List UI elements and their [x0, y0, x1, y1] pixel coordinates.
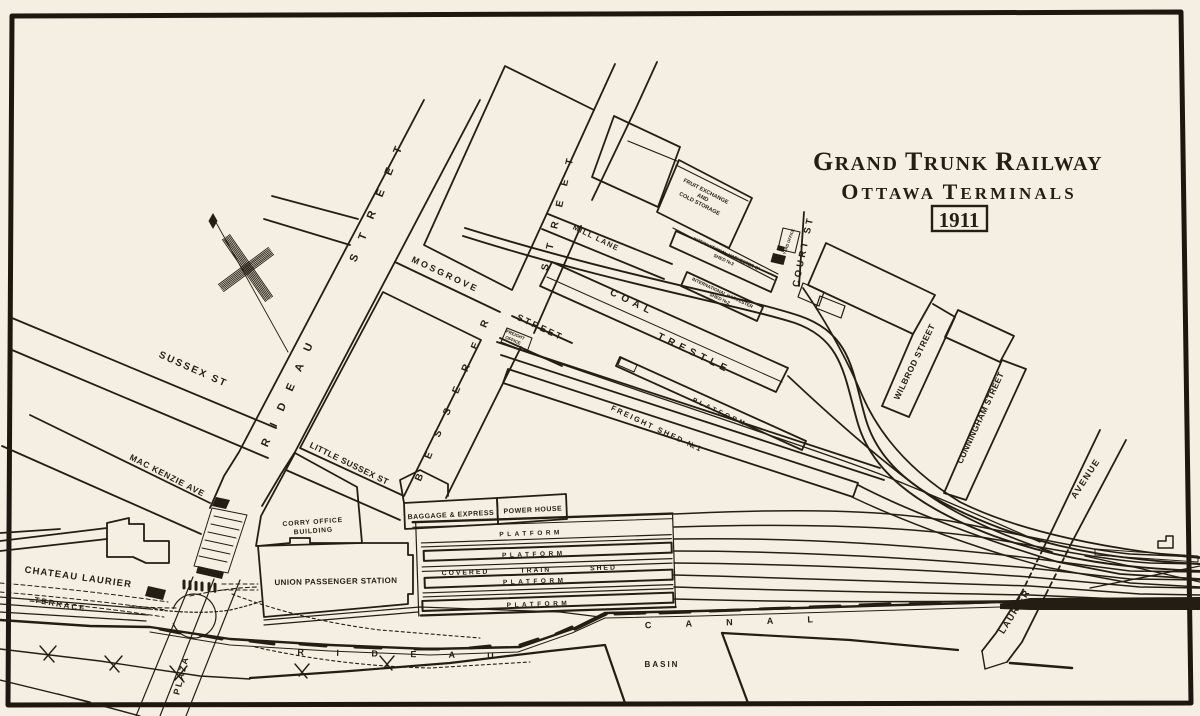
svg-text:BASIN: BASIN	[645, 660, 680, 669]
svg-text:1911: 1911	[939, 208, 980, 232]
